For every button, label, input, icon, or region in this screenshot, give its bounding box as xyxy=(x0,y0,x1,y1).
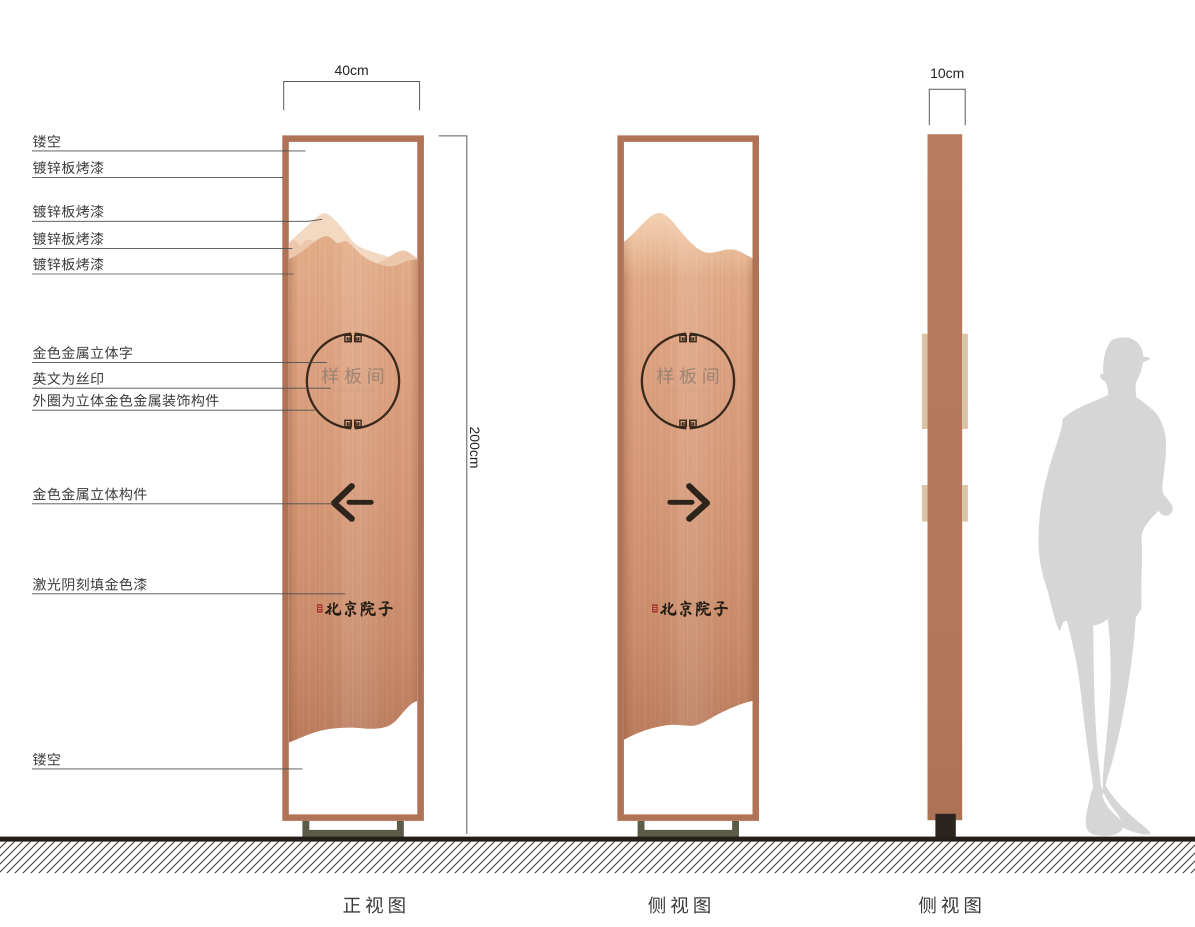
svg-text:40cm: 40cm xyxy=(334,62,368,78)
svg-text:SAMPLE ROOM: SAMPLE ROOM xyxy=(667,388,709,393)
svg-text:10cm: 10cm xyxy=(930,65,964,81)
svg-text:200cm: 200cm xyxy=(467,427,483,469)
svg-text:SAMPLE ROOM: SAMPLE ROOM xyxy=(332,388,374,393)
